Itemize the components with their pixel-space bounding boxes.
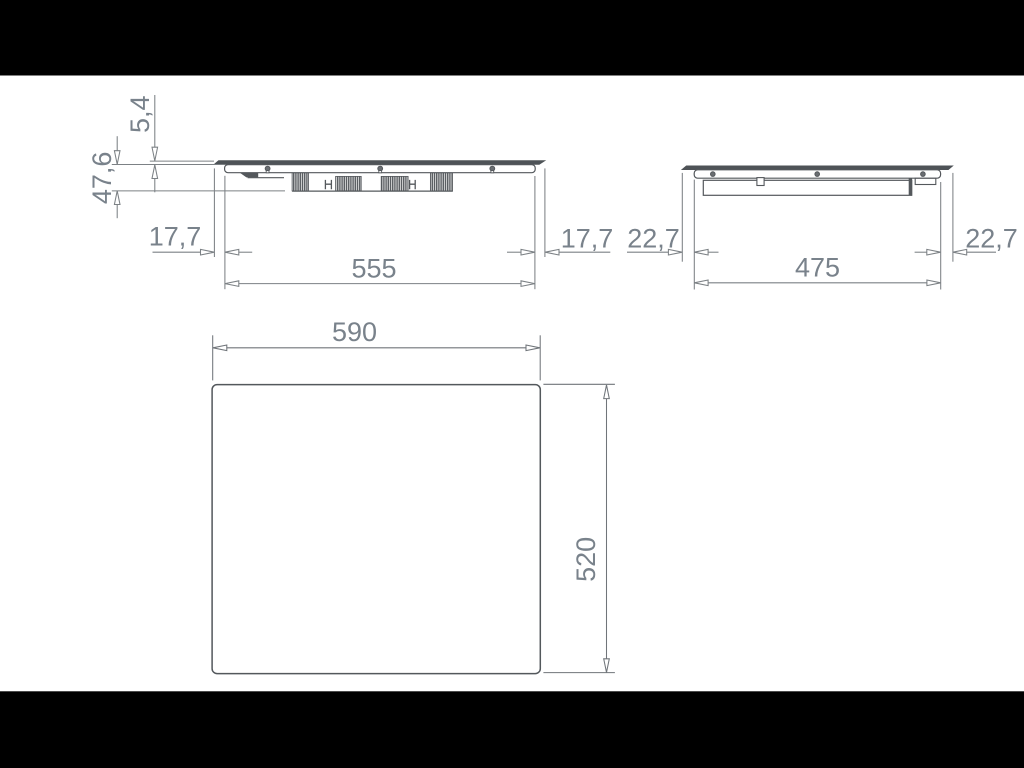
- svg-text:22,7: 22,7: [627, 223, 680, 253]
- svg-text:520: 520: [571, 537, 601, 582]
- svg-text:590: 590: [332, 317, 377, 347]
- svg-text:22,7: 22,7: [965, 223, 1018, 253]
- svg-text:17,7: 17,7: [149, 221, 202, 251]
- svg-text:47,6: 47,6: [87, 152, 117, 205]
- svg-text:475: 475: [795, 253, 840, 283]
- svg-text:17,7: 17,7: [561, 223, 614, 253]
- svg-text:555: 555: [351, 253, 396, 283]
- svg-text:5,4: 5,4: [125, 95, 155, 133]
